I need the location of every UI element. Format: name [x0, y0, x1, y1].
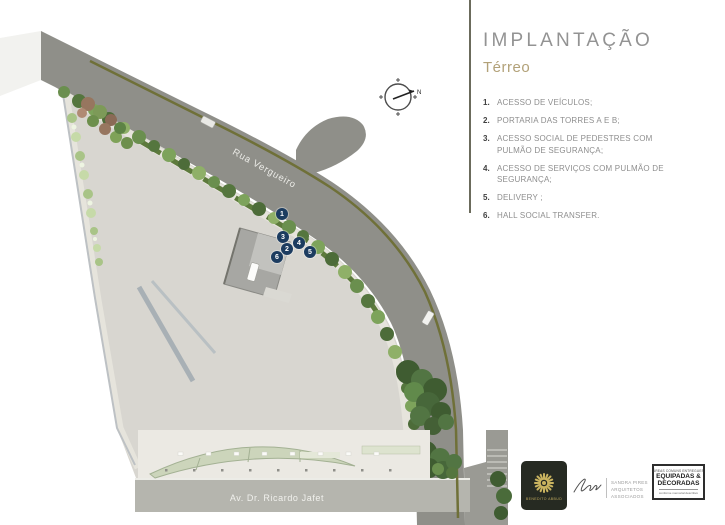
benedito-abbud-label: BENEDITO ABBUD — [526, 497, 562, 501]
map-marker-6: 6 — [271, 251, 283, 263]
map-marker-5: 5 — [304, 246, 316, 258]
info-panel: IMPLANTAÇÃO Térreo 1. ACESSO DE VEÍCULOS… — [483, 30, 711, 229]
legend-item-text: DELIVERY ; — [497, 192, 543, 203]
legend-item: 3. ACESSO SOCIAL DE PEDESTRES COM PULMÃO… — [483, 133, 683, 155]
sandra-line-3: ASSOCIADOS — [611, 494, 648, 501]
map-marker-4: 4 — [293, 237, 305, 249]
legend-item: 1. ACESSO DE VEÍCULOS; — [483, 97, 683, 108]
badge-bottom-text: conforme memorial descritivo — [659, 489, 698, 495]
legend-item: 5. DELIVERY ; — [483, 192, 683, 203]
panel-divider-line — [469, 0, 471, 213]
dropoff-area — [138, 430, 430, 478]
legend-item-text: ACESSO SOCIAL DE PEDESTRES COM PULMÃO DE… — [497, 133, 683, 155]
legend-item-number: 6. — [483, 210, 497, 221]
legend-item-number: 2. — [483, 115, 497, 126]
legend-item-text: HALL SOCIAL TRANSFER. — [497, 210, 600, 221]
badge-main-text-2: DECORADAS — [658, 480, 700, 487]
page-title: IMPLANTAÇÃO — [483, 30, 711, 52]
sandra-line-2: ARQUITETOS — [611, 487, 648, 494]
compass-north-label: N — [417, 90, 421, 96]
legend-item: 4. ACESSO DE SERVIÇOS COM PULMÃO DE SEGU… — [483, 163, 683, 185]
page-subtitle: Térreo — [483, 59, 711, 76]
sandra-line-1: SANDRA PIRES — [611, 480, 648, 487]
map-marker-2: 2 — [281, 243, 293, 255]
legend-item: 6. HALL SOCIAL TRANSFER. — [483, 210, 683, 221]
benedito-abbud-logo: BENEDITO ABBUD — [521, 461, 567, 510]
presentation-slide: Rua Vergueiro Av. Dr. Ricardo Jafet N 1 … — [0, 0, 725, 525]
plan-legend: 1. ACESSO DE VEÍCULOS; 2. PORTARIA DAS T… — [483, 97, 683, 222]
logo-divider-line — [606, 478, 607, 498]
legend-item-text: ACESSO DE SERVIÇOS COM PULMÃO DE SEGURAN… — [497, 163, 683, 185]
street-label-av-ricardo-jafet: Av. Dr. Ricardo Jafet — [230, 493, 324, 503]
legend-item-number: 3. — [483, 133, 497, 155]
legend-item: 2. PORTARIA DAS TORRES A E B; — [483, 115, 683, 126]
map-marker-1: 1 — [276, 208, 288, 220]
flower-icon — [532, 471, 556, 495]
legend-item-number: 4. — [483, 163, 497, 185]
legend-item-number: 5. — [483, 192, 497, 203]
legend-item-text: ACESSO DE VEÍCULOS; — [497, 97, 592, 108]
badge-main-text-1: EQUIPADAS & — [656, 473, 701, 480]
equipadas-decoradas-badge: ÁREAS COMUNS ENTREGUES EQUIPADAS & DECOR… — [652, 464, 705, 500]
signature-icon — [570, 474, 606, 498]
site-plan: Rua Vergueiro Av. Dr. Ricardo Jafet N — [0, 0, 520, 525]
legend-item-number: 1. — [483, 97, 497, 108]
sandra-pires-logo: SANDRA PIRES ARQUITETOS ASSOCIADOS — [611, 480, 648, 501]
map-marker-3: 3 — [277, 231, 289, 243]
legend-item-text: PORTARIA DAS TORRES A E B; — [497, 115, 620, 126]
